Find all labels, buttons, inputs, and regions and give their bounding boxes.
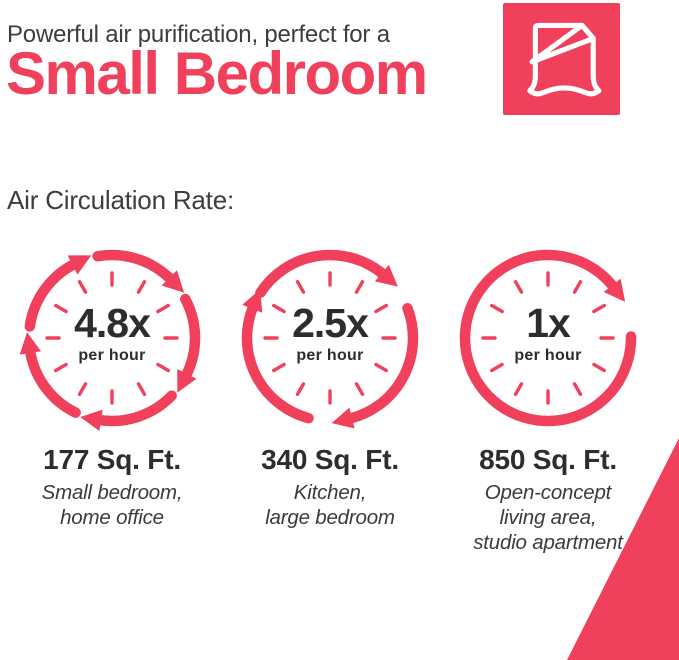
circulation-item: 2.5x per hour 340 Sq. Ft. Kitchen, large… <box>224 245 436 555</box>
room-description: Open-concept living area, studio apartme… <box>473 480 623 555</box>
bed-duvet-icon <box>503 3 620 115</box>
circulation-item: 4.8x per hour 177 Sq. Ft. Small bedroom,… <box>6 245 218 555</box>
page-title: Small Bedroom <box>6 44 427 104</box>
area-value: 850 Sq. Ft. <box>479 446 617 474</box>
circulation-dial: 2.5x per hour <box>237 245 423 431</box>
circular-arrows-icon <box>237 245 423 431</box>
infographic-page: Powerful air purification, perfect for a… <box>0 0 679 660</box>
circular-arrows-icon <box>19 245 205 431</box>
circulation-item: 1x per hour 850 Sq. Ft. Open-concept liv… <box>442 245 654 555</box>
area-value: 340 Sq. Ft. <box>261 446 399 474</box>
room-description: Kitchen, large bedroom <box>265 480 395 530</box>
room-description: Small bedroom, home office <box>42 480 183 530</box>
room-type-badge <box>503 3 620 115</box>
circular-arrows-icon <box>455 245 641 431</box>
section-label: Air Circulation Rate: <box>7 186 234 216</box>
circulation-dial: 1x per hour <box>455 245 641 431</box>
circulation-dial: 4.8x per hour <box>19 245 205 431</box>
circulation-rate-row: 4.8x per hour 177 Sq. Ft. Small bedroom,… <box>6 245 654 555</box>
area-value: 177 Sq. Ft. <box>43 446 181 474</box>
